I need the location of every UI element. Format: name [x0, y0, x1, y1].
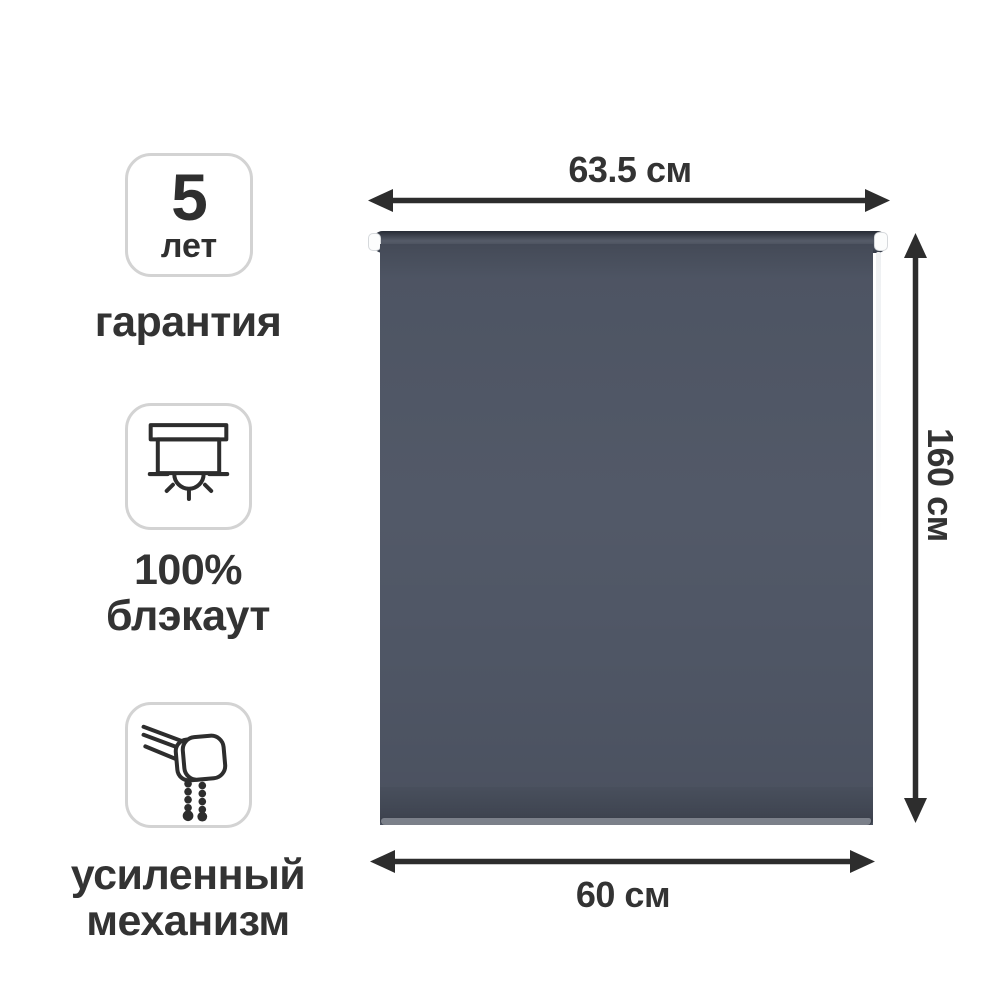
pull-chain	[876, 252, 881, 540]
blackout-label-line2: блэкаут	[22, 593, 354, 639]
blackout-blind-icon	[132, 410, 245, 523]
warranty-label-line: гарантия	[22, 299, 354, 345]
width-arrow-top	[368, 189, 890, 212]
blind-fabric	[380, 244, 873, 825]
product-image: 5 лет гарантия 100% блэкаут	[0, 0, 1000, 1000]
mechanism-label-line1: усиленный	[22, 852, 354, 898]
warranty-years: 5	[171, 168, 207, 226]
warranty-badge: 5 лет	[125, 153, 253, 277]
mechanism-feature-box	[125, 702, 252, 828]
dimension-label-height: 160 см	[919, 428, 961, 528]
blackout-feature-box	[125, 403, 252, 530]
blind-bottom-edge	[381, 818, 871, 825]
warranty-label: гарантия	[22, 299, 354, 345]
mechanism-label-line2: механизм	[22, 898, 354, 944]
dimension-label-width-bottom: 60 см	[473, 874, 773, 916]
dimension-label-width-top: 63.5 см	[480, 149, 780, 191]
blackout-label-line1: 100%	[22, 547, 354, 593]
roller-mechanism-icon	[132, 709, 245, 822]
roller-end-cap-right	[874, 232, 888, 251]
blackout-label: 100% блэкаут	[22, 547, 354, 639]
warranty-unit: лет	[161, 229, 217, 263]
mechanism-label: усиленный механизм	[22, 852, 354, 944]
width-arrow-bottom	[370, 850, 875, 873]
